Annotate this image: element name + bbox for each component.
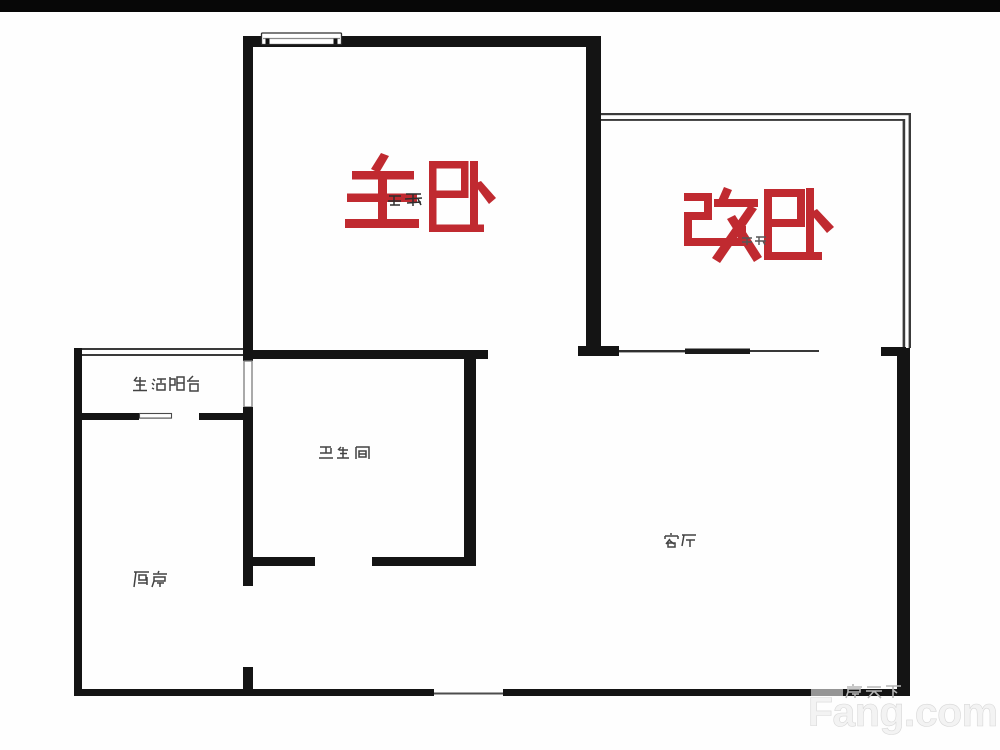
svg-text:Fang.com: Fang.com [808, 689, 998, 735]
